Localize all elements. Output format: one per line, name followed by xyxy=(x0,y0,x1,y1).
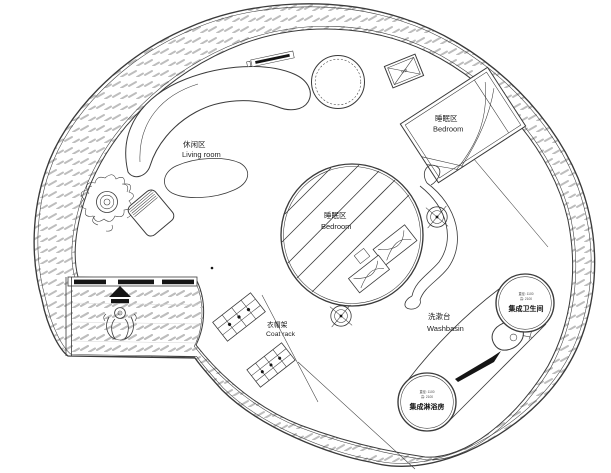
wall-shelf xyxy=(246,51,294,68)
entrance-corridor xyxy=(66,277,203,357)
coat-rack-label: 衣帽架 Coat rack xyxy=(266,320,296,338)
plant xyxy=(81,175,134,231)
bedroom-upper-label-en: Bedroom xyxy=(433,125,463,134)
bedroom-center-label-en: Bedroom xyxy=(321,222,351,231)
coat-rack-label-en: Coat rack xyxy=(266,331,296,338)
bedroom-center-label-zh: 睡眠区 xyxy=(324,211,347,220)
bathroom-pod-spec2: 高: 2100 xyxy=(520,296,532,301)
partition-line-coat xyxy=(262,295,318,402)
floor-plan-drawing: 空调 xyxy=(0,0,611,473)
floor-plan: 空调 xyxy=(0,0,611,473)
coat-rack-1 xyxy=(213,293,266,341)
coffee-table xyxy=(164,158,247,197)
shower-pod-label: 集成淋浴房 xyxy=(409,402,445,411)
washbasin-label-zh: 洗漱台 xyxy=(428,311,451,321)
shower-pod-spec2: 高: 2100 xyxy=(421,394,433,399)
washbasin-label: 洗漱台 Washbasin xyxy=(427,311,464,333)
coat-rack-label-zh: 衣帽架 xyxy=(267,320,288,329)
entrance-door-track xyxy=(68,277,197,286)
direction-arrow-icon xyxy=(455,351,501,382)
coat-rack-2 xyxy=(247,343,295,387)
bathroom-pod-label: 集成卫生间 xyxy=(508,304,544,313)
round-table xyxy=(312,56,365,109)
bathroom-pod: 直径: 1100 高: 2100 集成卫生间 xyxy=(496,274,554,332)
shower-pod-spec1: 直径: 1100 xyxy=(420,389,435,394)
washbasin-label-en: Washbasin xyxy=(427,324,464,333)
living-room-label-en: Living room xyxy=(182,150,221,159)
shower-pod: 直径: 1100 高: 2100 集成淋浴房 xyxy=(398,373,456,431)
small-dot xyxy=(211,267,214,270)
living-room-label: 休闲区 Living room xyxy=(182,139,221,159)
partition-line-bedroom xyxy=(468,152,548,247)
bathroom-pod-spec1: 直径: 1100 xyxy=(519,291,534,296)
ac-unit-box: 空调 xyxy=(384,54,423,88)
center-bed-circle xyxy=(281,164,423,306)
living-room-label-zh: 休闲区 xyxy=(183,139,206,149)
bedroom-upper-label-zh: 睡眠区 xyxy=(435,114,458,123)
